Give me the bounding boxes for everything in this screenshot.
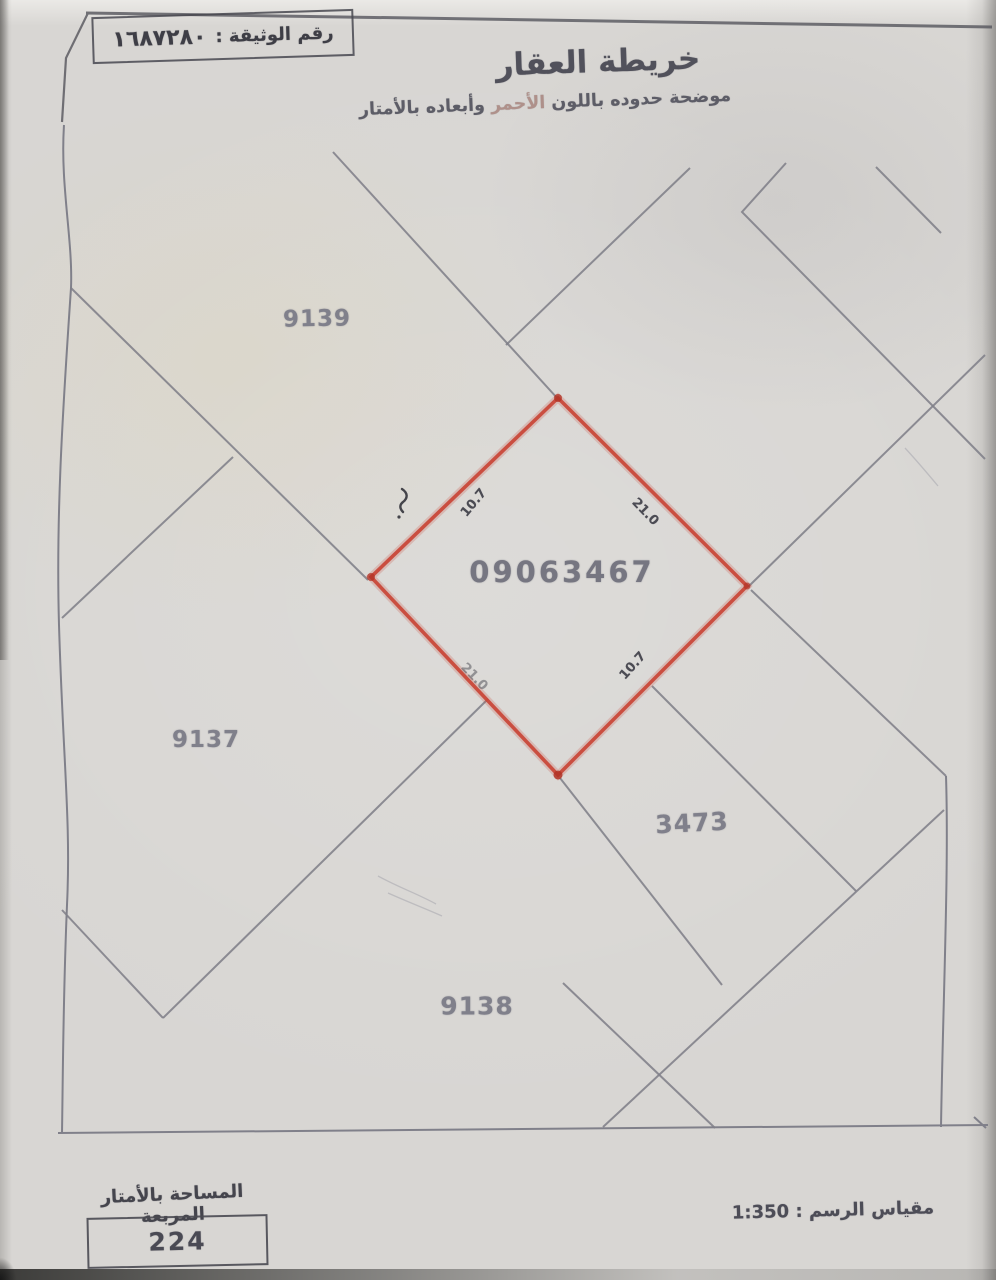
subtitle-part2: الأحمر [491,93,546,115]
neighbor-parcel-label-9138: 9138 [440,992,514,1021]
document-number-box: رقم الوثيقة : ١٦٨٧٢٨٠ [91,9,354,64]
scan-corner-shadow [0,1244,26,1280]
area-value: 224 [148,1226,207,1256]
area-value-box: 224 [86,1214,268,1269]
handwritten-mark [397,489,406,519]
neighbor-parcel-label-3473: 3473 [654,807,729,840]
neighbor-parcel-label-9137: 9137 [172,727,240,753]
parcel-map-drawing [0,0,996,1280]
map-border-lines [58,125,988,1133]
scanned-property-map-page: رقم الوثيقة : ١٦٨٧٢٨٠ خريطة العقار موضحة… [0,0,996,1280]
parcel-boundary-lines [62,152,985,1128]
scan-bottom-edge-shadow [0,1269,996,1280]
neighbor-parcel-label-9139: 9139 [283,305,351,332]
document-number-value: ١٦٨٧٢٨٠ [112,25,207,53]
target-parcel-number: 09063467 [469,555,654,589]
scan-left-edge-shadow [0,0,9,660]
document-number-label: رقم الوثيقة : [215,23,334,48]
